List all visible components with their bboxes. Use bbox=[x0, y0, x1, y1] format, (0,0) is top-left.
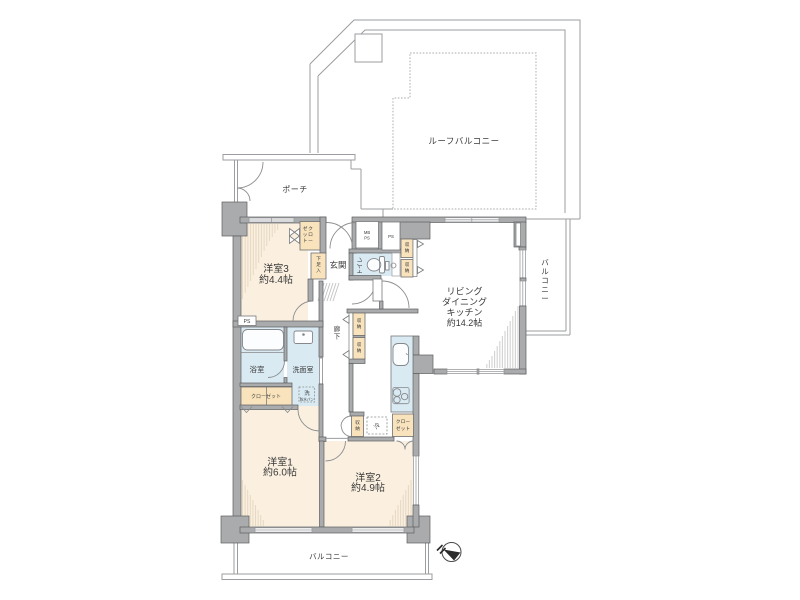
svg-text:収: 収 bbox=[357, 317, 362, 324]
svg-text:洗: 洗 bbox=[304, 389, 310, 397]
svg-text:約4.4帖: 約4.4帖 bbox=[259, 273, 293, 286]
svg-text:防水パン: 防水パン bbox=[300, 397, 315, 402]
svg-text:納: 納 bbox=[355, 425, 360, 432]
svg-text:ダイニング: ダイニング bbox=[442, 296, 487, 307]
svg-text:バ: バ bbox=[541, 258, 549, 267]
svg-text:下: 下 bbox=[334, 333, 341, 341]
svg-text:洗面室: 洗面室 bbox=[293, 365, 314, 374]
svg-text:収: 収 bbox=[357, 341, 362, 348]
svg-text:トイレ: トイレ bbox=[358, 257, 364, 275]
svg-text:納: 納 bbox=[357, 323, 362, 330]
svg-text:ロ: ロ bbox=[308, 232, 313, 238]
svg-text:約14.2帖: 約14.2帖 bbox=[447, 317, 483, 328]
svg-text:ー: ー bbox=[308, 239, 313, 244]
svg-text:納: 納 bbox=[357, 347, 362, 354]
svg-text:ッ: ッ bbox=[303, 233, 308, 238]
svg-text:収: 収 bbox=[355, 419, 360, 426]
svg-text:PS: PS bbox=[244, 319, 251, 325]
svg-text:廊: 廊 bbox=[334, 324, 341, 333]
svg-text:ポーチ: ポーチ bbox=[282, 185, 308, 194]
svg-text:玄関: 玄関 bbox=[329, 260, 346, 270]
svg-text:約6.0帖: 約6.0帖 bbox=[263, 466, 297, 479]
svg-text:PS: PS bbox=[388, 234, 394, 239]
svg-text:ト: ト bbox=[303, 239, 308, 244]
svg-text:バルコニー: バルコニー bbox=[309, 552, 349, 561]
svg-text:収: 収 bbox=[405, 261, 410, 268]
svg-text:ー: ー bbox=[541, 294, 549, 303]
svg-text:PS: PS bbox=[364, 236, 370, 241]
svg-text:入: 入 bbox=[316, 268, 321, 274]
svg-text:下: 下 bbox=[316, 256, 321, 262]
svg-text:洋室1: 洋室1 bbox=[267, 456, 293, 469]
svg-text:ニ: ニ bbox=[541, 285, 549, 294]
svg-text:クロー: クロー bbox=[396, 419, 411, 425]
svg-text:納: 納 bbox=[405, 247, 410, 254]
svg-text:ゼ: ゼ bbox=[303, 225, 308, 232]
svg-text:クローゼット: クローゼット bbox=[251, 393, 281, 400]
svg-text:MB: MB bbox=[364, 230, 370, 235]
svg-text:ルーフバルコニー: ルーフバルコニー bbox=[428, 136, 499, 146]
svg-text:足: 足 bbox=[316, 262, 321, 268]
svg-text:キッチン: キッチン bbox=[446, 308, 482, 318]
svg-text:ル: ル bbox=[541, 267, 549, 276]
svg-text:収: 収 bbox=[405, 241, 410, 248]
svg-text:納: 納 bbox=[405, 267, 410, 274]
svg-text:洋室3: 洋室3 bbox=[263, 262, 289, 275]
svg-text:ク: ク bbox=[308, 226, 313, 232]
svg-text:コ: コ bbox=[541, 276, 549, 285]
svg-text:浴室: 浴室 bbox=[250, 364, 265, 374]
svg-text:約4.9帖: 約4.9帖 bbox=[351, 481, 385, 494]
svg-text:リビング: リビング bbox=[446, 286, 482, 297]
svg-text:ゼット: ゼット bbox=[396, 425, 411, 432]
